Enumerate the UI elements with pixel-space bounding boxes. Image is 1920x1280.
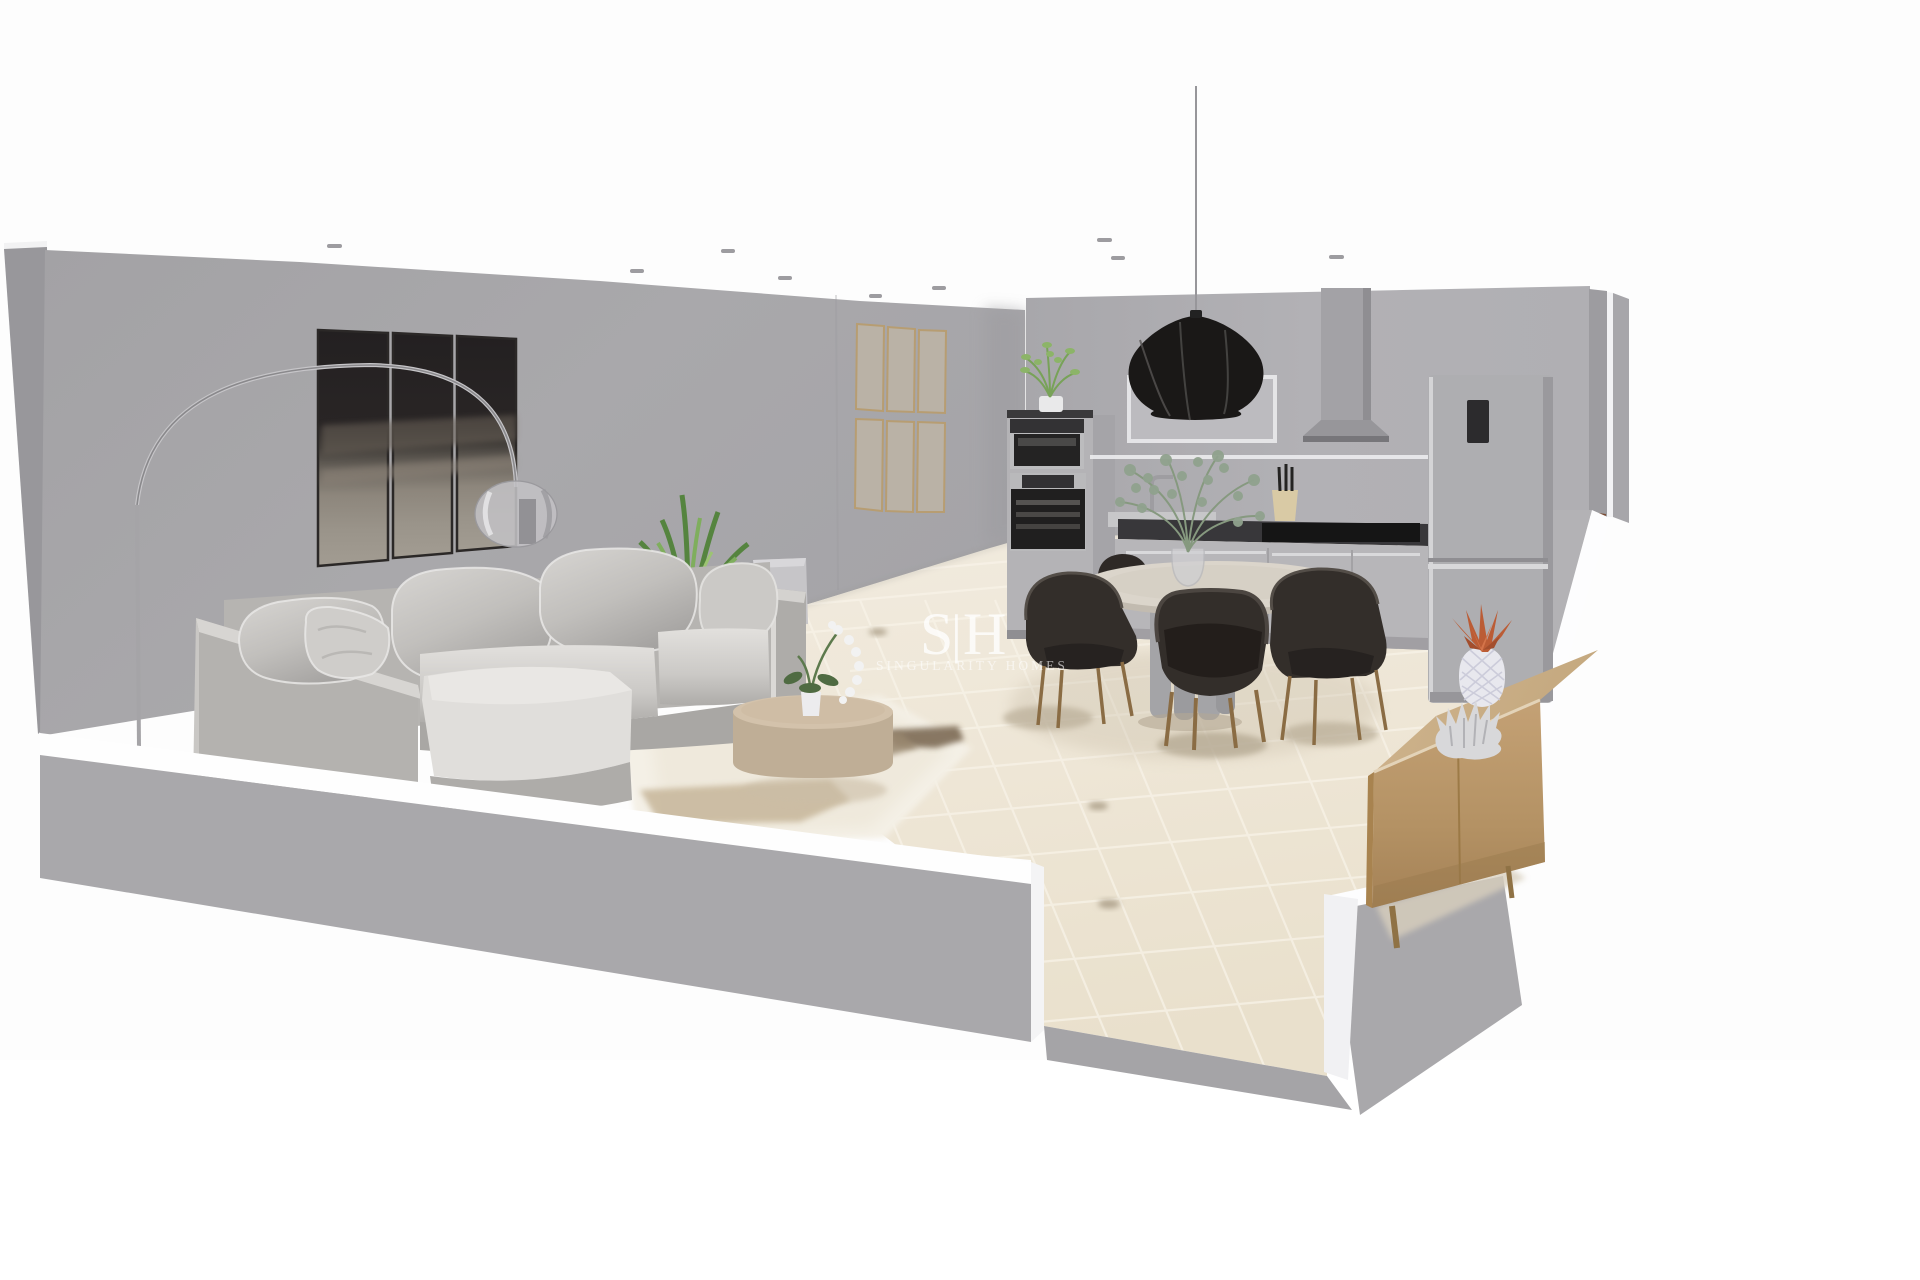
svg-text:|: |	[951, 604, 962, 664]
svg-text:SINGULARITY HOMES: SINGULARITY HOMES	[876, 658, 1068, 673]
